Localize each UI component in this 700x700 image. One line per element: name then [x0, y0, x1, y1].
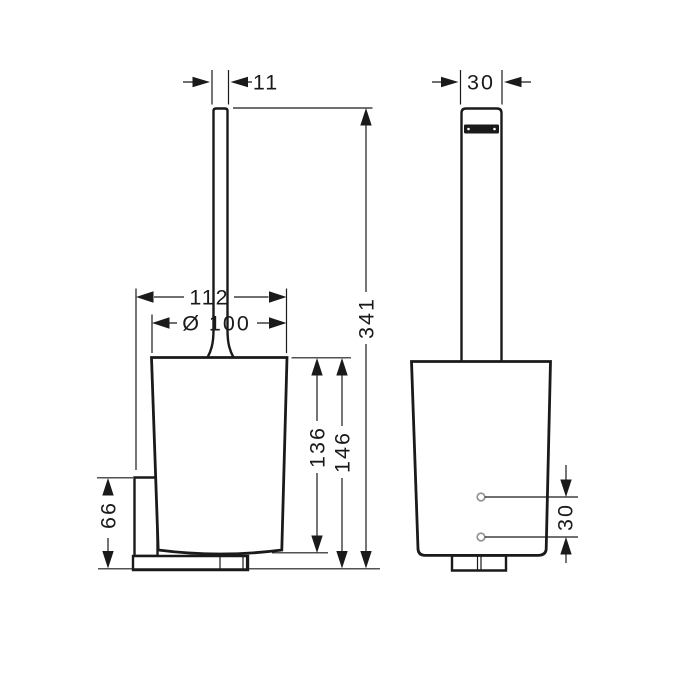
- dim-label-screw-hole-spacing: 30: [554, 503, 578, 531]
- arrowhead: [504, 77, 522, 87]
- arrowhead: [336, 551, 347, 569]
- arrowhead: [311, 536, 322, 554]
- dim-label-total-height: 341: [355, 297, 379, 339]
- arrowhead: [102, 551, 113, 569]
- arrowhead: [441, 77, 459, 87]
- grip-bar-dot-right: [493, 128, 496, 131]
- screw-hole-lower: [477, 533, 485, 541]
- side-cup: [152, 358, 288, 555]
- front-view: [412, 109, 551, 571]
- arrowhead: [360, 108, 371, 126]
- dim-label-overall-width: 112: [189, 286, 229, 310]
- dim-front-handle-width: 30: [432, 70, 531, 105]
- dim-label-bracket-height: 66: [97, 501, 121, 529]
- arrowhead: [231, 77, 249, 87]
- dim-label-cup-height: 136: [306, 426, 330, 468]
- grip-bar-dot-left: [467, 128, 470, 131]
- arrowhead: [336, 358, 347, 376]
- screw-hole-upper: [477, 493, 485, 501]
- dim-side-handle-width: 11: [183, 70, 279, 105]
- dim-cup-height: 136: [306, 358, 330, 553]
- dim-label-body-height: 146: [331, 431, 355, 473]
- front-foot: [452, 556, 506, 571]
- technical-drawing: 11 30 112 Ø 100 66 136: [0, 0, 700, 700]
- arrowhead: [560, 480, 571, 498]
- dim-label-cup-diameter: Ø 100: [182, 312, 251, 336]
- arrowhead: [269, 291, 287, 302]
- arrowhead: [136, 291, 154, 302]
- arrowhead: [102, 478, 113, 496]
- dim-label-side-handle-width: 11: [253, 71, 279, 95]
- arrowhead: [152, 317, 170, 328]
- side-bottom-plate: [133, 556, 248, 570]
- dim-bracket-height: 66: [97, 478, 134, 569]
- front-cup: [412, 362, 551, 556]
- arrowhead: [360, 551, 371, 569]
- arrowhead: [560, 537, 571, 555]
- arrowhead: [193, 77, 211, 87]
- arrowhead: [269, 317, 287, 328]
- dim-label-front-handle-width: 30: [467, 71, 495, 95]
- arrowhead: [311, 358, 322, 376]
- front-brush-handle: [462, 109, 502, 362]
- side-view: [98, 109, 380, 571]
- dimension-drawing-canvas: 11 30 112 Ø 100 66 136: [0, 0, 700, 700]
- dim-total-height: 341: [355, 108, 379, 569]
- dim-body-height: 146: [331, 358, 355, 569]
- side-wall-bracket: [135, 478, 158, 557]
